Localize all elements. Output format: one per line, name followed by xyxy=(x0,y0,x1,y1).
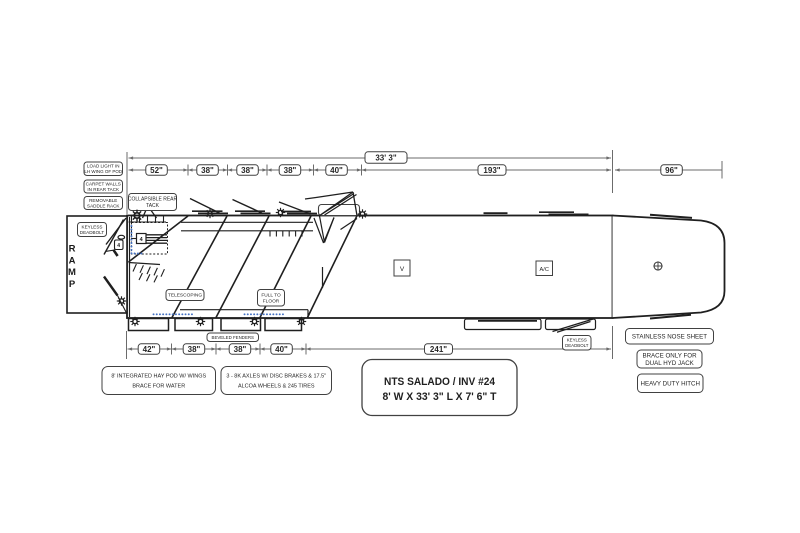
svg-text:NTS SALADO / INV #24: NTS SALADO / INV #24 xyxy=(384,376,496,388)
svg-text:A: A xyxy=(69,255,76,266)
svg-text:4: 4 xyxy=(117,243,120,249)
svg-text:38": 38" xyxy=(234,345,247,354)
svg-text:COLLAPSIBLE REAR: COLLAPSIBLE REAR xyxy=(128,197,178,203)
svg-text:DUAL HYD JACK: DUAL HYD JACK xyxy=(645,360,694,367)
svg-text:38": 38" xyxy=(188,345,201,354)
svg-text:SADDLE RACK: SADDLE RACK xyxy=(87,203,120,208)
svg-text:LH WING OF POD: LH WING OF POD xyxy=(84,169,123,174)
svg-text:42": 42" xyxy=(143,345,156,354)
svg-text:ALCOA WHEELS & 245 TIRES: ALCOA WHEELS & 245 TIRES xyxy=(238,383,315,389)
svg-text:IN REAR TACK: IN REAR TACK xyxy=(87,187,120,192)
svg-text:FULL TO: FULL TO xyxy=(261,293,281,299)
svg-text:M: M xyxy=(68,267,76,278)
svg-text:P: P xyxy=(69,279,76,290)
svg-text:TELESCOPING: TELESCOPING xyxy=(168,293,202,299)
svg-text:A/C: A/C xyxy=(540,267,549,273)
svg-text:R: R xyxy=(69,244,76,255)
svg-text:STAINLESS NOSE SHEET: STAINLESS NOSE SHEET xyxy=(632,333,707,340)
svg-text:REMOVABLE: REMOVABLE xyxy=(89,198,117,203)
svg-text:38": 38" xyxy=(201,166,214,175)
svg-text:FLOOR: FLOOR xyxy=(263,298,280,304)
svg-text:8' W X 33' 3" L X 7' 6" T: 8' W X 33' 3" L X 7' 6" T xyxy=(383,391,497,403)
svg-text:52": 52" xyxy=(150,166,163,175)
svg-text:3 - 8K AXLES W/ DISC BRAKES &: 3 - 8K AXLES W/ DISC BRAKES & 17.5" xyxy=(226,374,326,380)
svg-text:KEYLESS: KEYLESS xyxy=(82,224,103,229)
svg-text:38": 38" xyxy=(284,166,297,175)
svg-text:LOAD LIGHT IN: LOAD LIGHT IN xyxy=(87,164,119,169)
svg-text:KEYLESS: KEYLESS xyxy=(567,338,587,343)
svg-text:TACK: TACK xyxy=(146,203,160,209)
svg-text:8' INTEGRATED HAY POD W/ WINGS: 8' INTEGRATED HAY POD W/ WINGS xyxy=(111,374,206,380)
svg-text:HEAVY DUTY HITCH: HEAVY DUTY HITCH xyxy=(641,380,700,387)
svg-text:BEVELED FENDERS: BEVELED FENDERS xyxy=(212,335,255,340)
svg-text:BRACE ONLY FOR: BRACE ONLY FOR xyxy=(642,352,697,359)
svg-text:33' 3": 33' 3" xyxy=(375,153,396,162)
svg-text:40": 40" xyxy=(330,166,343,175)
svg-text:DEADBOLT: DEADBOLT xyxy=(80,230,105,235)
svg-text:38": 38" xyxy=(241,166,254,175)
svg-text:40": 40" xyxy=(275,345,288,354)
svg-text:193": 193" xyxy=(483,166,500,175)
svg-text:96": 96" xyxy=(665,166,678,175)
svg-text:V: V xyxy=(400,266,405,273)
svg-text:DEADBOLT: DEADBOLT xyxy=(565,343,589,348)
svg-text:BRACE FOR WATER: BRACE FOR WATER xyxy=(132,383,185,389)
svg-text:CARPET WALLS: CARPET WALLS xyxy=(86,181,121,186)
svg-text:241": 241" xyxy=(430,345,447,354)
